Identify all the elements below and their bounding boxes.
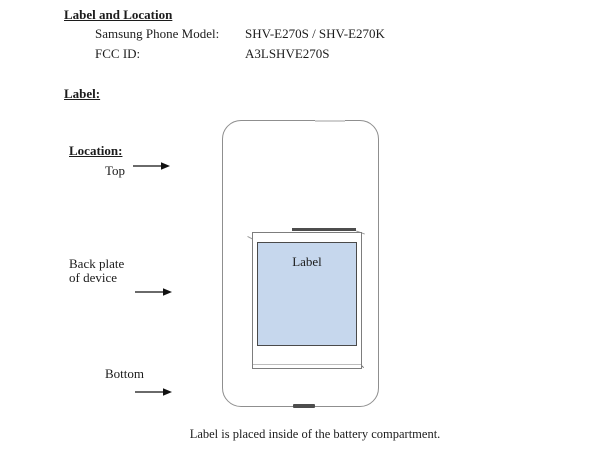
- arrow-right-icon: [134, 386, 174, 398]
- phone-back-diagram: Label: [222, 120, 379, 407]
- marker-backplate-label-line2: of device: [69, 270, 117, 285]
- marker-top-label: Top: [105, 163, 125, 178]
- field-label-phone-model: Samsung Phone Model:: [95, 26, 219, 41]
- label-section-heading: Label:: [64, 86, 100, 101]
- label-area-text: Label: [292, 254, 322, 269]
- phone-top-notch: [315, 120, 345, 122]
- marker-backplate-label-line1: Back plate: [69, 256, 124, 271]
- marker-bottom-label: Bottom: [105, 366, 144, 381]
- arrow-right-icon: [134, 286, 174, 298]
- diagram-caption: Label is placed inside of the battery co…: [150, 427, 480, 442]
- battery-compartment: Label: [252, 232, 362, 369]
- field-value-phone-model: SHV-E270S / SHV-E270K: [245, 26, 385, 41]
- page-title: Label and Location: [64, 7, 172, 22]
- document-page: Label and Location Samsung Phone Model: …: [0, 0, 600, 457]
- location-section-heading: Location:: [69, 143, 122, 158]
- label-area: Label: [257, 242, 357, 346]
- compartment-seam-line: [253, 364, 361, 365]
- field-value-fcc-id: A3LSHVE270S: [245, 46, 330, 61]
- field-label-fcc-id: FCC ID:: [95, 46, 140, 61]
- phone-bottom-port: [293, 404, 315, 408]
- arrow-right-icon: [132, 160, 172, 172]
- camera-strip: [292, 228, 356, 231]
